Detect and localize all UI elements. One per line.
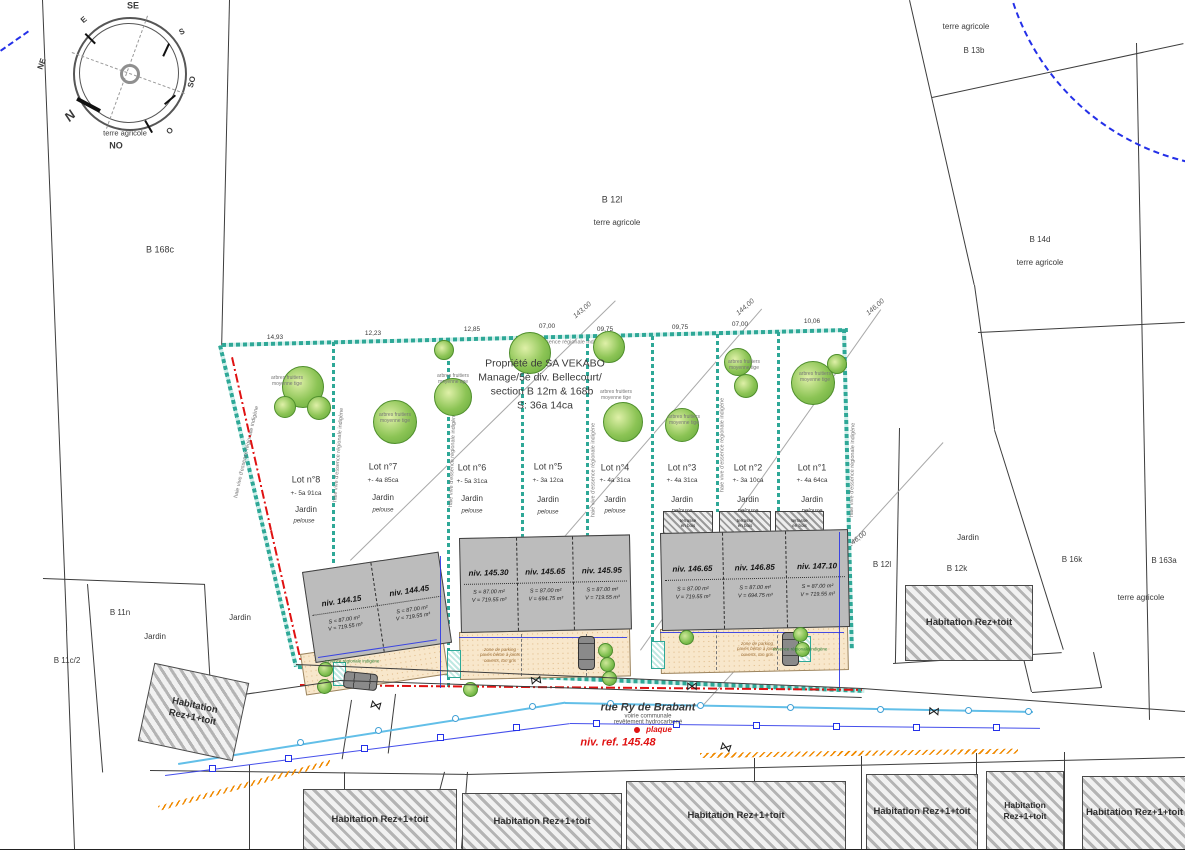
lot-name: Lot n°6 (458, 463, 487, 474)
new-plant-label: essence régionale indigène (325, 658, 380, 663)
parcel-boundary-line (1032, 687, 1102, 693)
parcel-label: B 11c/2 (54, 656, 81, 666)
parcel-label: Jardin (144, 632, 166, 642)
parking-divider (521, 634, 522, 676)
parcel-label: B 14d (1030, 235, 1051, 245)
parcel-label: B 12l (602, 195, 623, 206)
unit-level: niv. 146.85 (724, 562, 786, 572)
dimension-label: 09,75 (672, 324, 688, 332)
dimension-label: 12,85 (464, 326, 480, 334)
compass-e: E (79, 15, 89, 26)
parcel-boundary-line (909, 0, 975, 285)
sewer-line-node (993, 724, 1000, 731)
unit-volume: V = 694.75 m³ (738, 592, 773, 599)
hedge-label: haie vive d'essence régionale indigène (720, 398, 727, 492)
setback-arc (1000, 0, 1185, 169)
contour-label: 144,00 (735, 298, 757, 318)
parcel-boundary-line (42, 0, 67, 631)
fruit-trees-label: arbres fruitiers moyenne tige (799, 371, 831, 383)
habitation-label: Habitation Rez+toit (926, 617, 1012, 629)
parcel-boundary-line (43, 578, 205, 585)
plaque-label: plaque (646, 725, 672, 735)
water-line-node (375, 727, 382, 734)
bush (793, 627, 808, 642)
water-line-node (697, 702, 704, 709)
parcel-label: terre agricole (103, 129, 147, 138)
sewer-line-node (753, 722, 760, 729)
dwelling-unit: niv. 145.95 S = 87.00 m²V = 719.55 m³ (572, 535, 631, 629)
unit-volume: V = 719.55 m³ (800, 591, 835, 598)
parcel-boundary-line (1064, 752, 1065, 849)
habitation-building: Habitation Rez+1+toit (986, 771, 1064, 850)
title-line: Manage/5è div. Bellecourt/ (478, 372, 602, 385)
parcel-label: terre agricole (1118, 593, 1165, 603)
dimension-label: 07,00 (732, 321, 748, 329)
lot-area: +- 4a 85ca (368, 477, 399, 485)
building-block-c: niv. 146.65 S = 87.00 m²V = 719.55 m³ ni… (660, 529, 850, 631)
parcel-boundary-line (87, 584, 103, 772)
habitation-building: Habitation Rez+1+toit (138, 663, 250, 761)
lot-area: +- 3a 12ca (533, 477, 564, 485)
unit-volume: V = 719.55 m³ (676, 594, 711, 601)
dwelling-unit: niv. 145.65 S = 87.00 m²V = 694.75 m³ (516, 537, 575, 631)
hedge-label: haie vive d'essence régionale indigène (591, 423, 598, 517)
lot-ground: pelouse (461, 508, 482, 515)
hedge-divider (777, 332, 780, 512)
parcel-boundary-line (861, 756, 862, 849)
reference-level: niv. ref. 145.48 (580, 736, 655, 749)
parking-divider (716, 630, 717, 670)
fruit-trees-label: arbres fruitiers moyenne tige (437, 373, 469, 385)
unit-level: niv. 145.95 (574, 565, 630, 575)
setback-arc-fragment (0, 30, 29, 51)
title-line: section B 12m & 168b (491, 386, 594, 399)
sewer-line-node (285, 755, 292, 762)
survey-mark-icon: ⋈ (927, 704, 940, 719)
habitation-label: Habitation Rez+1+toit (144, 690, 242, 734)
lot-name: Lot n°8 (292, 475, 321, 486)
alignment-line (271, 530, 302, 662)
parcel-label: B 13b (964, 46, 985, 56)
car-symbol (578, 636, 595, 670)
survey-mark-icon: ⋈ (529, 672, 543, 688)
lot-area: +- 4a 31ca (600, 477, 631, 485)
lot-ground: pelouse (604, 508, 625, 515)
habitation-label: Habitation Rez+1+toit (1086, 807, 1183, 819)
habitation-label: Habitation Rez+1+toit (331, 814, 428, 826)
lot-area: +- 3a 10ca (733, 477, 764, 485)
hedge-divider (716, 334, 719, 512)
fruit-trees-label: arbres fruitiers moyenne tige (728, 359, 760, 371)
water-line-node (1025, 708, 1032, 715)
unit-surface: S = 87.00 m² (530, 588, 562, 595)
lot-use: Jardin (604, 495, 626, 505)
lot-area: +- 5a 31ca (457, 478, 488, 486)
lot-use: Jardin (461, 494, 483, 504)
unit-surface: S = 87.00 m² (739, 584, 771, 591)
parcel-boundary-line (978, 322, 1185, 333)
fruit-trees-label: arbres fruitiers moyenne tige (379, 412, 411, 424)
lot-area: +- 4a 31ca (667, 477, 698, 485)
alignment-line (232, 357, 272, 530)
parcel-boundary-line (895, 428, 900, 663)
sewer-line-node (833, 723, 840, 730)
lot-use: Jardin (737, 495, 759, 505)
dimension-line (839, 532, 840, 688)
dimension-label: 07,00 (539, 323, 555, 331)
tree (603, 402, 643, 442)
sewer-line-node (361, 745, 368, 752)
unit-surface: S = 87.00 m² (802, 583, 834, 590)
water-line-node (787, 704, 794, 711)
parcel-label: B 11n (110, 608, 130, 618)
lot-ground: pelouse (537, 509, 558, 516)
unit-volume: V = 719.55 m³ (585, 595, 620, 602)
water-line-node (877, 706, 884, 713)
parcel-label: terre agricole (1017, 258, 1064, 268)
lot-name: Lot n°1 (798, 463, 827, 474)
bush (679, 630, 694, 645)
parcel-label: B 163a (1151, 556, 1176, 566)
unit-volume: V = 719.55 m³ (472, 597, 507, 604)
unit-level: niv. 145.65 (517, 566, 573, 576)
sewer-line-node (513, 724, 520, 731)
tree (434, 340, 454, 360)
fruit-trees-label: arbres fruitiers moyenne tige (668, 414, 700, 426)
compass-s: S (178, 27, 187, 38)
water-line-node (297, 739, 304, 746)
parking-label: zone de parking pavés béton à joints ouv… (480, 647, 520, 663)
compass-n: N (61, 107, 79, 125)
water-line-node (452, 715, 459, 722)
new-plant-label: essence régionale indigène (773, 646, 828, 651)
parcel-label: B 12k (947, 564, 967, 574)
lot-name: Lot n°4 (601, 463, 630, 474)
compass-so: SO (186, 75, 198, 89)
parcel-boundary-line (1093, 652, 1102, 687)
dimension-label: 10,06 (804, 318, 820, 326)
lot-name: Lot n°3 (668, 463, 697, 474)
dimension-label: 14,93 (267, 334, 283, 342)
unit-surface: S = 87.00 m² (677, 586, 709, 593)
tree (274, 396, 296, 418)
title-line: S: 36a 14ca (517, 400, 573, 413)
site-plan-canvas: 143,00 144,00 146,00 146,00 N NE E SE S … (0, 0, 1185, 850)
dimension-line (440, 556, 441, 688)
sewer-line-node (593, 720, 600, 727)
compass-se: SE (127, 1, 139, 12)
utility-box (447, 650, 461, 678)
unit-level: niv. 145.30 (461, 568, 517, 578)
dwelling-unit: niv. 146.65 S = 87.00 m²V = 719.55 m³ (661, 533, 724, 630)
building-block-b: niv. 145.30 S = 87.00 m²V = 719.55 m³ ni… (459, 534, 632, 633)
lot-name: Lot n°5 (534, 462, 563, 473)
habitation-label: Habitation Rez+1+toit (987, 800, 1063, 822)
tree (734, 374, 758, 398)
sewer-line-node (209, 765, 216, 772)
lot-use: Jardin (801, 495, 823, 505)
unit-surface: S = 87.00 m² (586, 587, 618, 594)
parcel-label: B 12l (873, 560, 891, 570)
lot-area: +- 5a 91ca (291, 490, 322, 498)
utility-box (651, 641, 665, 669)
plaque-marker (634, 727, 640, 733)
bush (598, 643, 613, 658)
dwelling-unit: niv. 146.85 S = 87.00 m²V = 694.75 m³ (722, 531, 786, 628)
habitation-building: Habitation Rez+1+toit (462, 793, 622, 850)
bush (600, 657, 615, 672)
compass-hub (120, 64, 140, 84)
habitation-building: Habitation Rez+1+toit (1082, 776, 1185, 850)
lot-name: Lot n°7 (369, 462, 398, 473)
dimension-label: 12,23 (365, 330, 381, 338)
parcel-boundary-line (465, 757, 1185, 775)
parcel-label: B 168c (146, 245, 174, 256)
lot-ground: pelouse (293, 518, 314, 525)
embankment-line (700, 749, 1018, 758)
survey-mark-icon: ⋈ (368, 697, 383, 714)
unit-surface: S = 87.00 m² (473, 589, 505, 596)
lot-use: Jardin (671, 495, 693, 505)
lot-use: Jardin (537, 495, 559, 505)
parking-label: zone de parking pavés béton à joints ouv… (737, 641, 777, 657)
fruit-trees-label: arbres fruitiers moyenne tige (271, 375, 303, 387)
habitation-building: Habitation Rez+1+toit (626, 781, 846, 850)
parcel-boundary-line (249, 765, 250, 849)
habitation-label: Habitation Rez+1+toit (493, 816, 590, 828)
survey-mark-icon: ⋈ (686, 679, 698, 693)
fruit-trees-label: arbres fruitiers moyenne tige (600, 389, 632, 401)
dwelling-unit: niv. 144.45 S = 87.00 m²V = 719.55 m³ (370, 553, 451, 652)
dimension-line (459, 637, 627, 638)
hedge-divider (651, 336, 654, 646)
compass-no: NO (109, 141, 123, 152)
dwelling-unit: niv. 145.30 S = 87.00 m²V = 719.55 m³ (460, 538, 518, 632)
hedge-divider (332, 342, 335, 564)
parcel-label: Jardin (229, 613, 251, 623)
parcel-boundary-line (221, 0, 230, 345)
habitation-label: Habitation Rez+1+toit (873, 806, 970, 818)
hedge-label: haie vive d'essence régionale indigène (849, 423, 857, 517)
sewer-line-node (913, 724, 920, 731)
parcel-boundary-line (974, 285, 995, 430)
compass-o: O (164, 125, 175, 136)
lot-use: Jardin (372, 493, 394, 503)
lot-name: Lot n°2 (734, 463, 763, 474)
parcel-label: Jardin (957, 533, 979, 543)
lot-ground: pelouse (372, 507, 393, 514)
tree (307, 396, 331, 420)
habitation-building: Habitation Rez+toit (905, 585, 1033, 661)
unit-level: niv. 146.65 (662, 563, 724, 573)
habitation-label: Habitation Rez+1+toit (687, 810, 784, 822)
compass-ne: NE (36, 57, 49, 71)
parcel-label: terre agricole (594, 218, 641, 228)
parcel-label: terre agricole (943, 22, 990, 32)
habitation-building: Habitation Rez+1+toit (303, 789, 457, 850)
contour-label: 143,00 (572, 301, 594, 321)
title-line: Propriété de SA VEKABO (485, 358, 605, 371)
water-line-node (529, 703, 536, 710)
unit-volume: V = 694.75 m³ (528, 596, 563, 603)
water-line-node (965, 707, 972, 714)
sewer-line-node (437, 734, 444, 741)
habitation-building: Habitation Rez+1+toit (866, 774, 978, 850)
lot-area: +- 4a 64ca (797, 477, 828, 485)
parcel-label: B 16k (1062, 555, 1082, 565)
lot-use: Jardin (295, 505, 317, 515)
